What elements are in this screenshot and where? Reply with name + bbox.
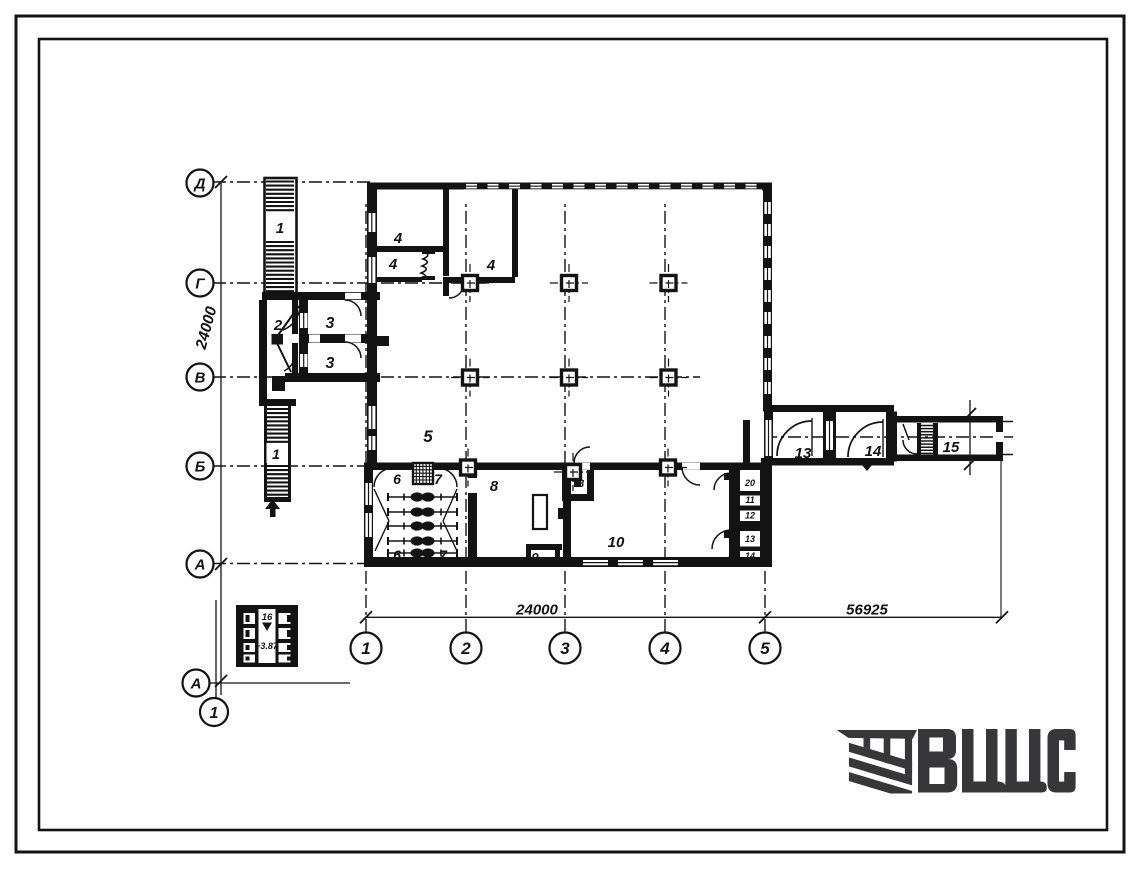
svg-text:12: 12 [745, 511, 755, 521]
svg-text:А: А [190, 676, 202, 693]
svg-text:15: 15 [943, 439, 960, 456]
svg-text:4: 4 [388, 256, 398, 273]
svg-text:~3.87: ~3.87 [255, 641, 279, 651]
svg-text:20: 20 [744, 478, 755, 488]
svg-text:3: 3 [326, 315, 335, 332]
svg-text:9: 9 [531, 550, 539, 565]
svg-text:16: 16 [262, 612, 273, 623]
svg-text:6: 6 [393, 547, 401, 563]
svg-text:6: 6 [393, 471, 401, 487]
svg-text:Г: Г [195, 276, 205, 293]
svg-text:8: 8 [490, 478, 499, 495]
svg-text:Д: Д [193, 176, 206, 193]
svg-text:13: 13 [795, 445, 812, 462]
svg-text:4: 4 [659, 639, 670, 658]
svg-text:10: 10 [608, 534, 625, 551]
svg-text:1: 1 [361, 639, 370, 658]
svg-text:2: 2 [273, 317, 283, 334]
svg-text:1: 1 [276, 220, 284, 237]
svg-text:3: 3 [560, 639, 570, 658]
svg-text:1: 1 [272, 446, 280, 462]
svg-text:24000: 24000 [515, 602, 558, 619]
svg-text:5: 5 [423, 427, 433, 446]
svg-text:14: 14 [865, 443, 882, 460]
svg-text:5: 5 [760, 639, 770, 658]
svg-text:56925: 56925 [846, 602, 888, 619]
svg-text:11: 11 [745, 495, 754, 505]
svg-text:4: 4 [486, 257, 496, 274]
svg-text:8: 8 [578, 478, 585, 490]
svg-text:13: 13 [745, 534, 755, 544]
svg-text:7: 7 [439, 547, 448, 563]
svg-text:4: 4 [393, 230, 403, 247]
svg-text:3: 3 [326, 355, 335, 372]
svg-text:Б: Б [195, 459, 206, 476]
svg-text:А: А [194, 557, 206, 574]
svg-text:7: 7 [434, 471, 443, 487]
svg-text:1: 1 [210, 705, 219, 722]
svg-text:В: В [195, 370, 206, 387]
svg-text:2: 2 [460, 639, 471, 658]
svg-text:14: 14 [745, 551, 755, 561]
